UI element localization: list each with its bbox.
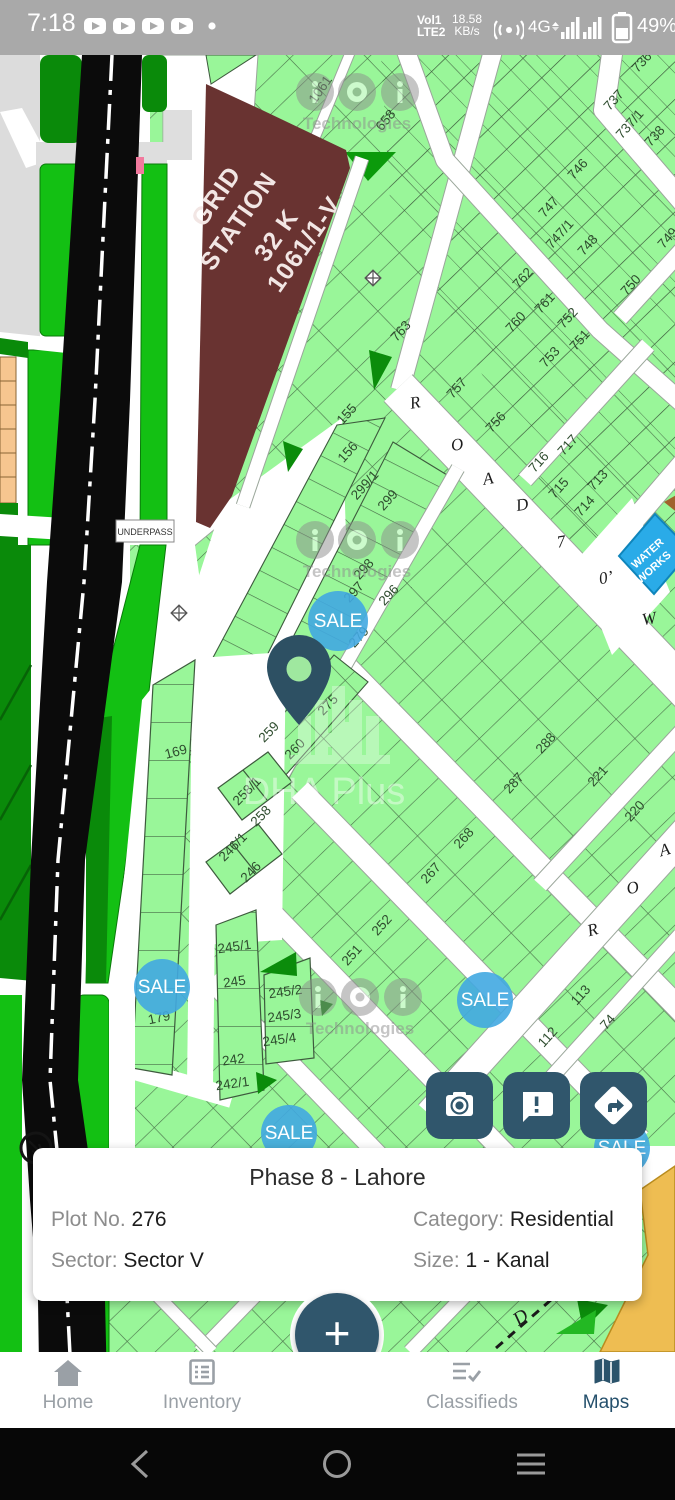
svg-text:Technologies: Technologies: [303, 562, 411, 581]
svg-text:242: 242: [221, 1051, 245, 1069]
svg-text:SALE: SALE: [265, 1123, 314, 1144]
svg-text:Technologies: Technologies: [303, 114, 411, 133]
svg-text:SALE: SALE: [138, 977, 187, 998]
svg-text:UNDERPASS: UNDERPASS: [117, 527, 172, 537]
svg-text:245: 245: [222, 973, 246, 991]
svg-text:Technologies: Technologies: [306, 1019, 414, 1038]
svg-text:DHA Plus: DHA Plus: [243, 771, 406, 813]
svg-text:SALE: SALE: [314, 611, 363, 632]
svg-text:SALE: SALE: [461, 990, 510, 1011]
